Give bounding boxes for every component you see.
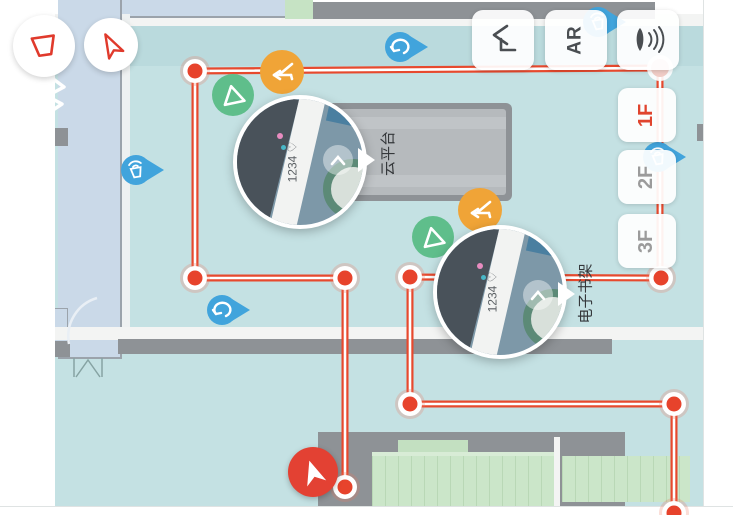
chevron-up-icon (529, 289, 547, 301)
gps-arrow-icon (296, 455, 329, 490)
chevron-up-icon (329, 154, 347, 166)
panorama-pin[interactable] (384, 30, 430, 64)
indoor-map-app: 1234 ♡ 云平台 1234 ♡ 电子书架 (0, 0, 733, 515)
floor-label: 2F (618, 150, 676, 204)
step-back-arrow-icon (484, 21, 522, 59)
beacon-pin[interactable] (120, 153, 166, 187)
poi-marker-orange[interactable] (260, 50, 304, 94)
photo-bubble[interactable]: 1234 ♡ (433, 225, 567, 359)
bubble-caption: 1234 ♡ (477, 247, 507, 337)
navigate-tool-button[interactable] (84, 18, 138, 72)
floor-button-3f[interactable]: 3F (618, 214, 676, 268)
current-location-marker (288, 447, 338, 497)
photo-bubble[interactable]: 1234 ♡ (233, 95, 367, 229)
poi-label: 电子书架 (570, 256, 600, 330)
turn-arrow-icon (465, 196, 495, 224)
trapezoid-icon (25, 30, 63, 62)
floor-label: 1F (618, 88, 676, 142)
floor-button-1f[interactable]: 1F (618, 88, 676, 142)
reroute-button[interactable] (472, 10, 534, 70)
turn-arrow-icon (267, 58, 297, 86)
bubble-expand-button[interactable] (523, 280, 553, 310)
floor-label: 3F (618, 214, 676, 268)
bubble-expand-button[interactable] (323, 145, 353, 175)
panorama-pin[interactable] (206, 293, 252, 327)
voice-button[interactable] (617, 10, 679, 70)
nav-arrow-outline-icon (89, 23, 132, 66)
poi-label: 云平台 (372, 120, 402, 186)
ar-label: AR (545, 10, 607, 70)
region-tool-button[interactable] (13, 15, 75, 77)
bubble-caption: 1234 ♡ (277, 117, 307, 207)
voice-wave-icon (627, 20, 669, 60)
ar-mode-button[interactable]: AR (545, 10, 607, 70)
floor-button-2f[interactable]: 2F (618, 150, 676, 204)
